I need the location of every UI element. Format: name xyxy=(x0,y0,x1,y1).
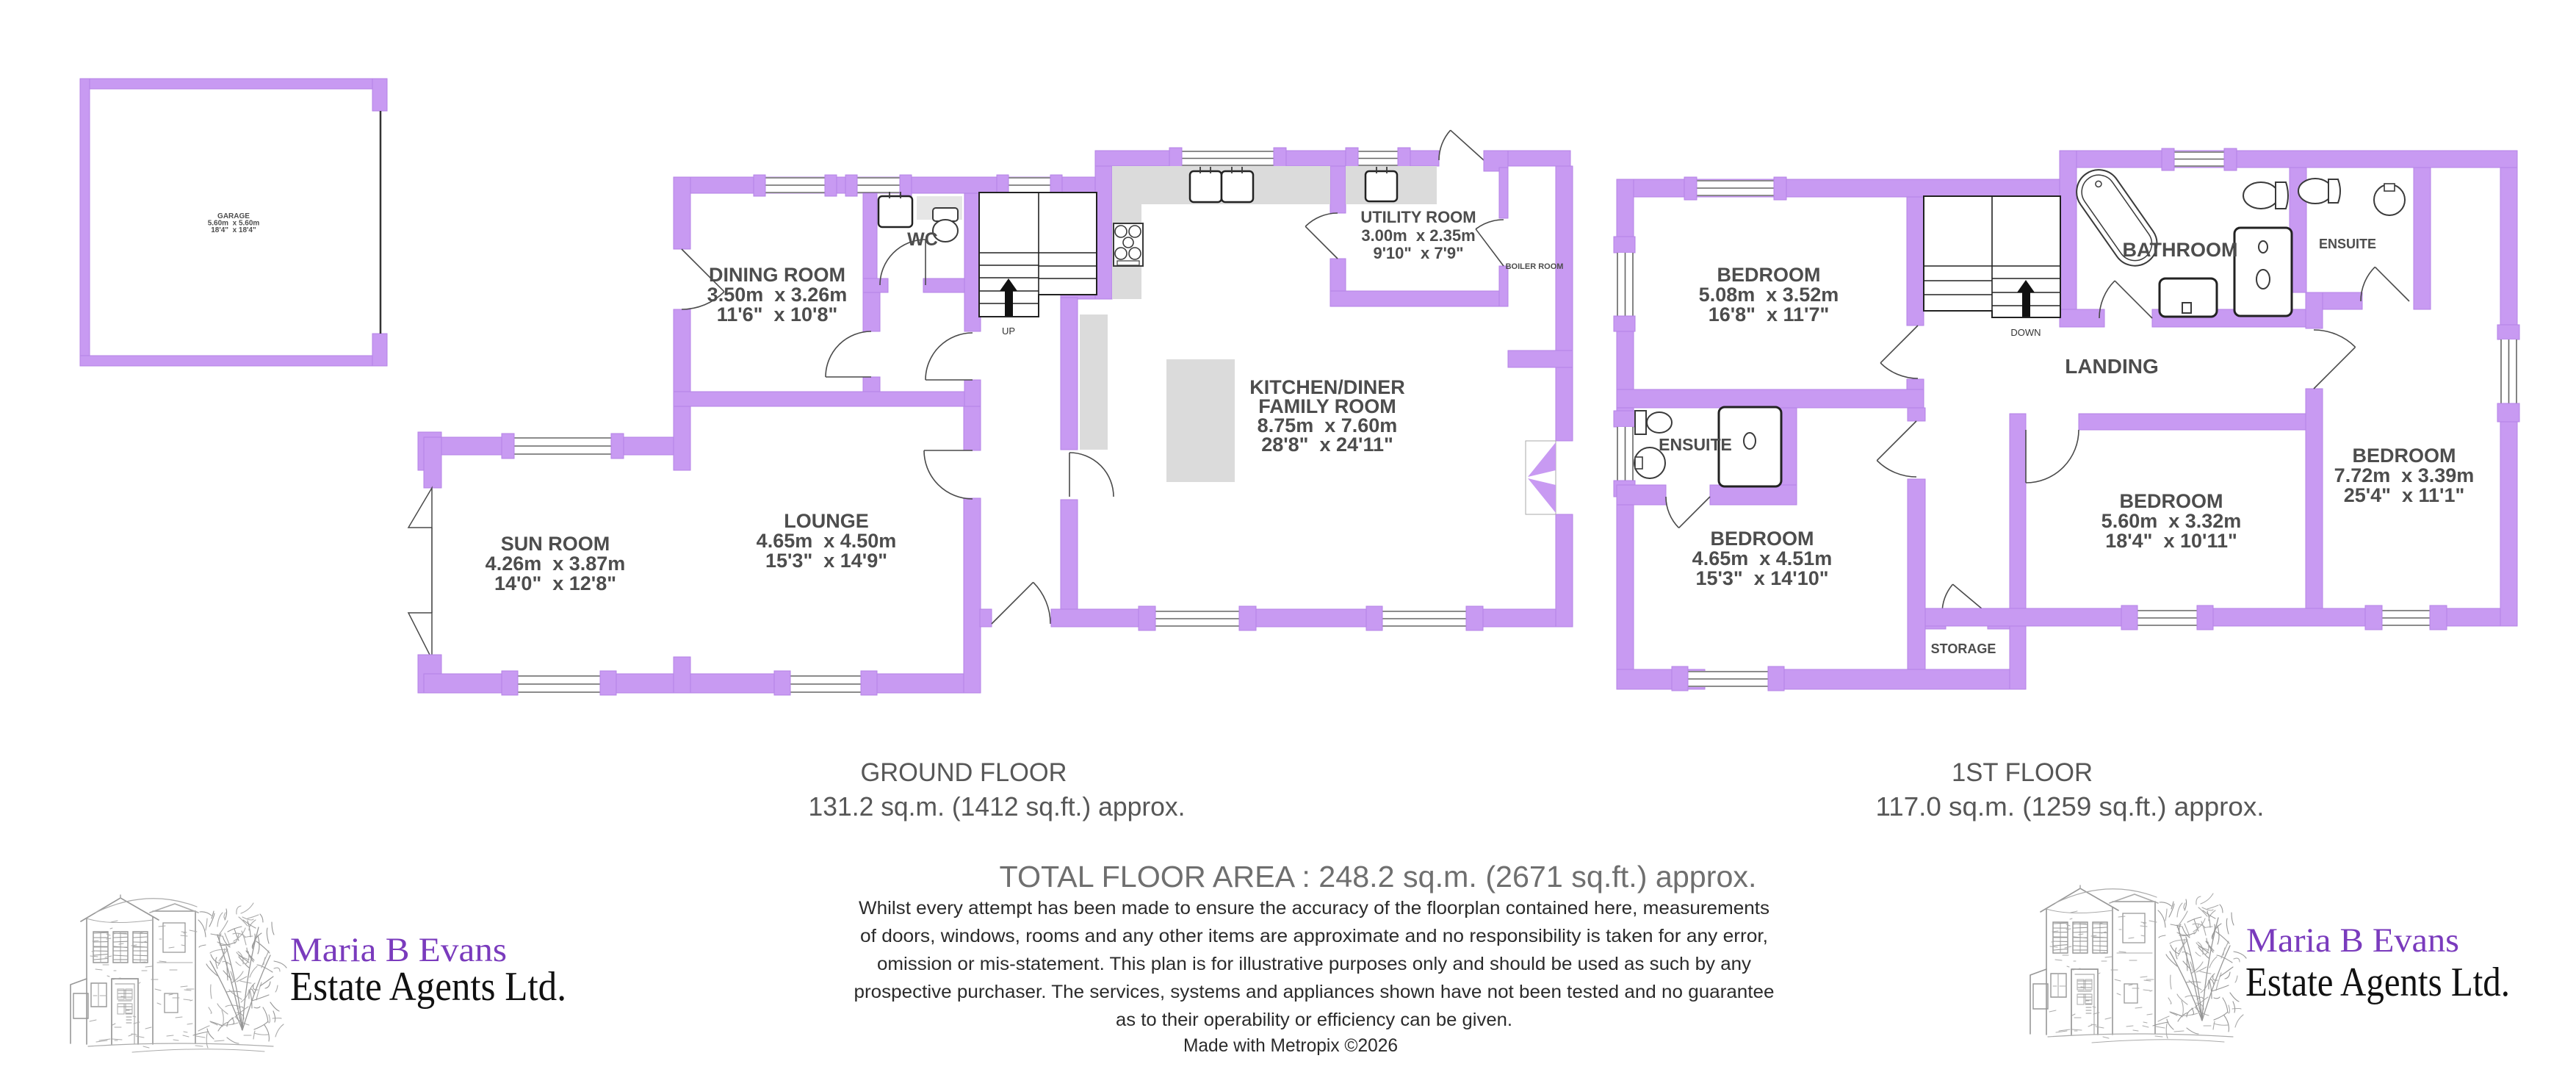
svg-text:Whilst every attempt has been: Whilst every attempt has been made to en… xyxy=(859,898,1769,918)
svg-text:16'8" x 11'7": 16'8" x 11'7" xyxy=(1709,303,1830,326)
svg-text:1ST FLOOR: 1ST FLOOR xyxy=(1952,758,2093,787)
svg-text:3.00m x 2.35m: 3.00m x 2.35m xyxy=(1361,226,1475,245)
svg-text:DOWN: DOWN xyxy=(2010,327,2041,338)
svg-text:LANDING: LANDING xyxy=(2065,355,2159,378)
svg-text:117.0 sq.m. (1259 sq.ft.) appr: 117.0 sq.m. (1259 sq.ft.) approx. xyxy=(1876,791,2265,821)
svg-text:Estate Agents Ltd.: Estate Agents Ltd. xyxy=(290,964,566,1010)
svg-text:BOILER ROOM: BOILER ROOM xyxy=(1506,262,1564,271)
svg-text:4.26m x 3.87m: 4.26m x 3.87m xyxy=(486,553,626,575)
svg-text:15'3" x 14'9": 15'3" x 14'9" xyxy=(765,550,887,572)
svg-text:BEDROOM: BEDROOM xyxy=(2353,445,2456,467)
svg-text:as to their operability or eff: as to their operability or efficiency ca… xyxy=(1116,1010,1512,1030)
svg-text:ENSUITE: ENSUITE xyxy=(1659,435,1732,454)
svg-text:BEDROOM: BEDROOM xyxy=(1717,264,1821,286)
svg-text:prospective purchaser. The ser: prospective purchaser. The services, sys… xyxy=(854,982,1775,1002)
svg-text:7.72m x 3.39m: 7.72m x 3.39m xyxy=(2334,464,2475,486)
svg-text:3.50m x 3.26m: 3.50m x 3.26m xyxy=(707,284,848,306)
svg-text:STORAGE: STORAGE xyxy=(1931,641,1996,656)
svg-text:UP: UP xyxy=(1002,326,1015,337)
svg-text:DINING ROOM: DINING ROOM xyxy=(709,264,845,286)
svg-text:TOTAL FLOOR AREA : 248.2 sq.m.: TOTAL FLOOR AREA : 248.2 sq.m. (2671 sq.… xyxy=(1000,860,1757,894)
svg-text:131.2 sq.m. (1412 sq.ft.) appr: 131.2 sq.m. (1412 sq.ft.) approx. xyxy=(809,791,1186,821)
svg-text:LOUNGE: LOUNGE xyxy=(784,510,869,532)
svg-text:SUN ROOM: SUN ROOM xyxy=(501,533,610,555)
svg-text:Estate Agents Ltd.: Estate Agents Ltd. xyxy=(2245,960,2510,1005)
svg-text:18'4" x 10'11": 18'4" x 10'11" xyxy=(2105,530,2237,552)
svg-text:ENSUITE: ENSUITE xyxy=(2319,237,2376,251)
svg-text:14'0" x 12'8": 14'0" x 12'8" xyxy=(494,572,616,594)
svg-text:WC: WC xyxy=(907,229,938,250)
svg-text:GROUND FLOOR: GROUND FLOOR xyxy=(861,758,1067,787)
svg-text:9'10" x 7'9": 9'10" x 7'9" xyxy=(1373,244,1463,262)
svg-text:18'4" x 18'4": 18'4" x 18'4" xyxy=(211,226,256,234)
svg-text:BEDROOM: BEDROOM xyxy=(2120,490,2223,512)
svg-text:28'8" x 24'11": 28'8" x 24'11" xyxy=(1261,434,1393,456)
svg-text:5.60m x 3.32m: 5.60m x 3.32m xyxy=(2101,510,2242,532)
svg-text:11'6" x 10'8": 11'6" x 10'8" xyxy=(717,303,838,326)
svg-text:25'4" x 11'1": 25'4" x 11'1" xyxy=(2344,484,2465,506)
svg-text:omission or mis-statement. Thi: omission or mis-statement. This plan is … xyxy=(877,954,1752,974)
svg-text:Maria B Evans: Maria B Evans xyxy=(2246,921,2459,960)
svg-text:BEDROOM: BEDROOM xyxy=(1711,528,1814,550)
svg-text:of doors, windows, rooms and a: of doors, windows, rooms and any other i… xyxy=(860,926,1768,946)
svg-text:5.08m x 3.52m: 5.08m x 3.52m xyxy=(1699,284,1839,306)
svg-text:4.65m x 4.50m: 4.65m x 4.50m xyxy=(757,530,897,552)
svg-text:BATHROOM: BATHROOM xyxy=(2123,239,2238,261)
svg-text:15'3" x 14'10": 15'3" x 14'10" xyxy=(1695,567,1828,589)
svg-text:4.65m x 4.51m: 4.65m x 4.51m xyxy=(1692,547,1833,569)
svg-text:UTILITY ROOM: UTILITY ROOM xyxy=(1360,208,1476,226)
svg-text:Made with Metropix ©2026: Made with Metropix ©2026 xyxy=(1183,1035,1398,1056)
